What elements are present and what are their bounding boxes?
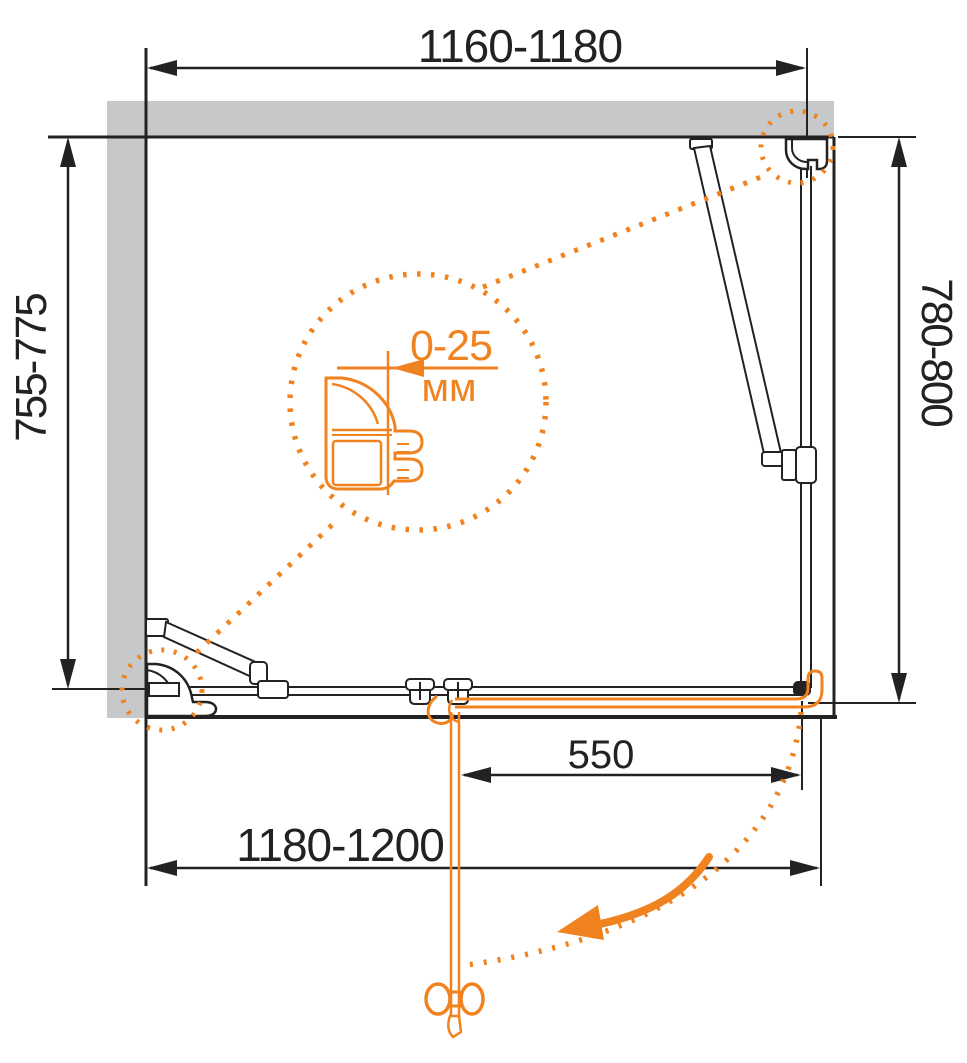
door-closed-outline [455,671,822,707]
support-bar-right [690,139,816,483]
dimension-bottom-width: 1180-1200 [147,819,820,876]
arrow-left-icon [461,767,491,783]
dimension-left-depth: 755-775 [7,137,76,689]
profile-outer-shape [326,378,422,489]
shower-enclosure-plan-drawing: 1160-1180 755-775 780-800 550 11 [0,0,967,1063]
dimension-right-depth: 780-800 [891,137,961,703]
support-bar-right-foot [782,450,796,480]
support-bar-right-glass-clamp [796,447,816,483]
detail-callout: 0-25 мм [122,111,833,730]
profile-cross-section [326,351,422,495]
dimension-top-width: 1160-1180 [147,20,806,76]
wall-profile-bottom-left-glass-slot [149,683,179,696]
support-bar-left-arm [164,622,260,678]
wall-top [107,101,834,137]
dimension-top-width-label: 1160-1180 [418,20,622,72]
dimension-door-width-label: 550 [568,733,635,777]
arrow-left-icon [147,60,177,76]
arrow-up-icon [891,137,907,167]
fittings [146,139,827,716]
dimension-right-depth-label: 780-800 [912,278,961,426]
arrow-left-icon [147,860,177,876]
arrow-down-icon [891,673,907,703]
dimension-bottom-width-label: 1180-1200 [236,819,444,871]
adjustment-range-label: 0-25 [410,322,492,370]
detail-connector-bottom-left [194,525,332,655]
wall-profile-bottom-left [147,664,216,716]
dimension-door-width: 550 [461,733,801,783]
support-bar-right-arm [694,146,781,458]
door-knob-left [426,984,450,1014]
door-knob [426,984,483,1014]
technical-drawing-page: 1160-1180 755-775 780-800 550 11 [0,0,967,1063]
door-swing-arrow-icon [557,905,604,940]
dimension-left-depth-label: 755-775 [7,294,56,442]
wall-left [107,101,146,718]
arrow-up-icon [60,137,76,167]
support-bar-left-foot [258,681,288,698]
door-knob-right [461,984,483,1014]
arrow-right-icon [790,860,820,876]
support-bar-right-elbow [762,452,784,466]
adjustment-unit-label: мм [422,366,477,410]
door-leaf-tip [448,1016,461,1037]
arrow-down-icon [60,659,76,689]
arrow-right-icon [776,60,806,76]
hinge-clamp-left [406,679,434,704]
door-group [426,671,822,1037]
wall-profile-top-right [786,139,827,169]
